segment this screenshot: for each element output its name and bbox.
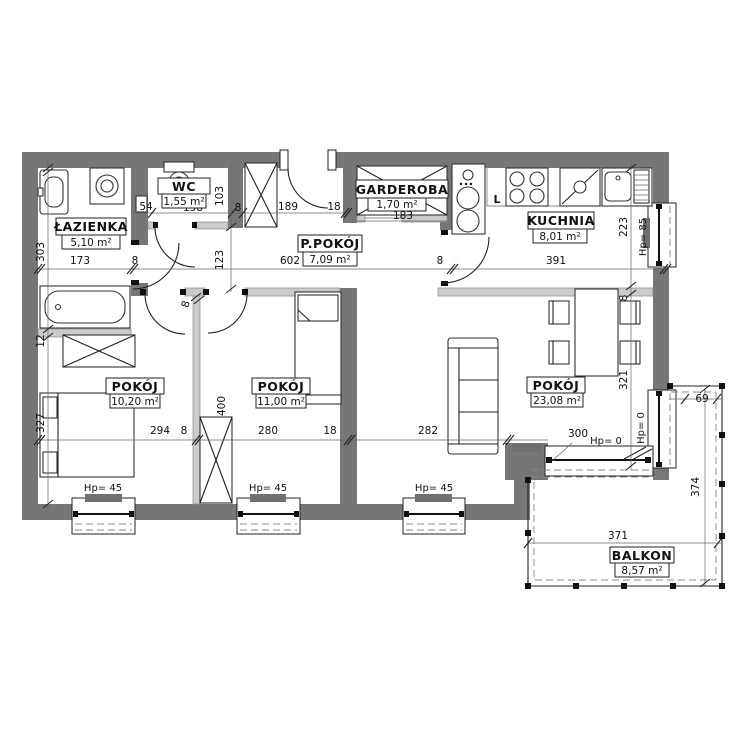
dining-table (575, 289, 618, 376)
radiator-room3 (415, 494, 452, 502)
room-label-pokoj1: POKÓJ 10,20 m² (106, 378, 164, 408)
room-label-balkon: BALKON 8,57 m² (610, 547, 674, 577)
wall-hall-south-a (185, 288, 205, 296)
dim-294: 294 (150, 425, 170, 437)
dim-69: 69 (695, 393, 708, 405)
svg-text:1,55 m²: 1,55 m² (163, 196, 204, 208)
dim-18: 18 (323, 425, 336, 437)
dim-8: 8 (179, 299, 192, 309)
svg-text:10,20 m²: 10,20 m² (111, 396, 159, 408)
sofa (448, 338, 498, 454)
dim-54: 54 (139, 201, 153, 213)
svg-text:POKÓJ: POKÓJ (112, 379, 159, 394)
floor-plan: L (0, 0, 750, 750)
dim-300: 300 (568, 428, 588, 440)
fridge-label: L (493, 193, 500, 206)
dim-8: 8 (181, 425, 188, 437)
dim-327: 327 (35, 413, 47, 433)
hp45-label-1: Hp= 45 (84, 483, 122, 494)
wall-wc-east (228, 168, 243, 228)
window-kitchen (648, 203, 676, 267)
stove (506, 168, 548, 206)
room1-door-arc (145, 294, 185, 334)
svg-text:ŁAZIENKA: ŁAZIENKA (53, 219, 128, 234)
wall-room2-east (340, 288, 357, 504)
dishwasher (560, 168, 600, 206)
closet-hall (245, 163, 277, 227)
dim-602: 602 (280, 255, 300, 267)
svg-text:8,57 m²: 8,57 m² (621, 565, 662, 577)
bath-door-jamb-top (131, 240, 139, 245)
dim-280: 280 (258, 425, 278, 437)
dim-183: 183 (393, 210, 413, 222)
radiator-room1 (85, 494, 122, 502)
room-label-wc: WC 1,55 m² (158, 178, 210, 208)
dim-8: 8 (132, 255, 139, 267)
washbasin (38, 170, 68, 214)
wardrobe-room2 (200, 417, 232, 503)
svg-text:GARDEROBA: GARDEROBA (356, 182, 448, 197)
window-room1 (72, 498, 135, 534)
svg-text:11,00 m²: 11,00 m² (257, 396, 305, 408)
window-room2 (237, 498, 300, 534)
svg-text:8,01 m²: 8,01 m² (539, 231, 580, 243)
wall-wc-south-b (195, 222, 228, 229)
room-label-pokoj3: POKÓJ 23,08 m² (527, 377, 585, 407)
room1-door-jamb-right (180, 289, 186, 295)
radiator-room2 (250, 494, 286, 502)
wall-top-left (22, 152, 280, 168)
wall-room1-room2 (193, 296, 200, 504)
dim-400: 400 (216, 396, 228, 416)
dim-371: 371 (608, 530, 628, 542)
svg-text:BALKON: BALKON (612, 548, 672, 563)
svg-text:POKÓJ: POKÓJ (258, 379, 305, 394)
dim-8: 8 (437, 255, 444, 267)
room-label-lazienka: ŁAZIENKA 5,10 m² (53, 218, 128, 249)
kitchen-door-jamb-top (441, 230, 448, 235)
chair (620, 301, 640, 324)
svg-text:POKÓJ: POKÓJ (533, 378, 580, 393)
wardrobe-room1 (63, 335, 135, 367)
room2-door-arc (208, 294, 247, 333)
radiator-room3-south (512, 444, 542, 452)
dim-123: 123 (214, 250, 226, 270)
dim-173: 173 (70, 255, 90, 267)
room-label-ppokoj: P.POKÓJ 7,09 m² (298, 235, 362, 266)
svg-text:KUCHNIA: KUCHNIA (527, 213, 595, 228)
wc-door-jamb-right (192, 222, 197, 228)
svg-text:5,10 m²: 5,10 m² (70, 237, 111, 249)
hp0-label-right: Hp= 0 (636, 412, 647, 444)
svg-text:1,70 m²: 1,70 m² (376, 199, 417, 211)
kitchen-sink (602, 168, 652, 206)
kitchen-door-arc (443, 237, 489, 283)
svg-text:WC: WC (172, 179, 196, 194)
dim-282: 282 (418, 425, 438, 437)
wall-right-middle (653, 268, 669, 390)
dim-8: 8 (618, 295, 630, 302)
dim-103: 103 (214, 186, 226, 206)
chair (549, 301, 569, 324)
bathtub (40, 286, 130, 328)
entrance-jamb-right (328, 150, 336, 170)
balcony-window-south (532, 443, 658, 477)
dim-321: 321 (618, 370, 630, 390)
svg-text:23,08 m²: 23,08 m² (533, 395, 581, 407)
hp0-label-south: Hp= 0 (590, 436, 622, 447)
washer-column (452, 164, 485, 234)
dim-8: 8 (235, 202, 242, 214)
bath-door-jamb-bottom (131, 280, 139, 285)
room2-door-jamb-left (203, 289, 209, 295)
hp45-label-2: Hp= 45 (249, 483, 287, 494)
dim-189: 189 (278, 201, 298, 213)
wall-right-upper (653, 168, 669, 205)
dim-12: 12 (35, 334, 47, 347)
entrance-jamb-left (280, 150, 288, 170)
hp45-label-3: Hp= 45 (415, 483, 453, 494)
bath-door-arc (133, 243, 179, 289)
room-label-pokoj2: POKÓJ 11,00 m² (252, 378, 310, 408)
dim-374: 374 (690, 477, 702, 497)
floor-plan-drawing: L (0, 0, 750, 750)
dim-303: 303 (35, 242, 47, 262)
svg-text:7,09 m²: 7,09 m² (309, 254, 350, 266)
chair (549, 341, 569, 364)
dim-18: 18 (327, 201, 340, 213)
dim-391: 391 (546, 255, 566, 267)
chair (620, 341, 640, 364)
washing-machine (90, 168, 124, 204)
hp85-label: Hp= 85 (638, 218, 649, 256)
dim-223: 223 (618, 217, 630, 237)
room-label-kuchnia: KUCHNIA 8,01 m² (527, 212, 595, 243)
window-room3 (403, 498, 465, 534)
svg-text:P.POKÓJ: P.POKÓJ (300, 236, 359, 251)
